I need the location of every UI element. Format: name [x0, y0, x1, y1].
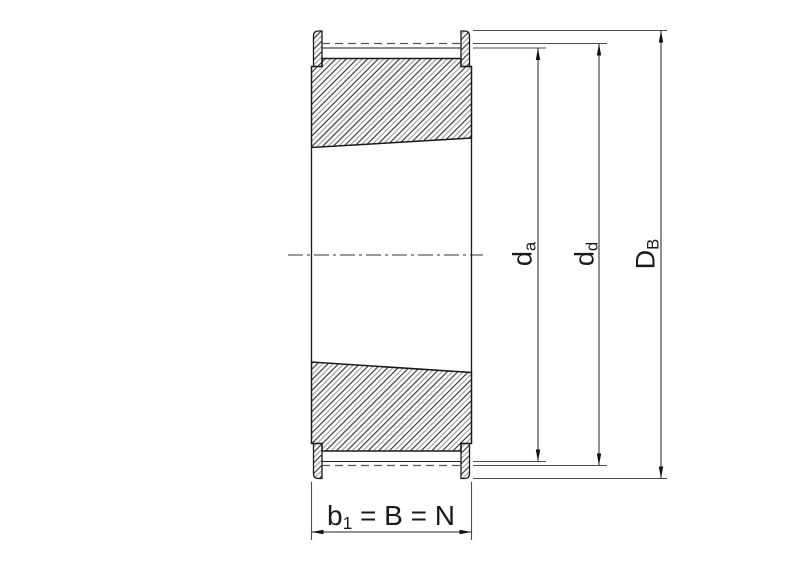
flange-bottom-left [314, 444, 323, 479]
label-width-base: b [327, 500, 343, 531]
label-width-dimension: b1 = B = N [327, 502, 455, 530]
arrow-b1-left [312, 530, 324, 534]
label-tip-diameter-base: d [508, 251, 538, 266]
label-flange-diameter-base: D [631, 250, 661, 270]
flange-bottom-right [461, 444, 470, 479]
arrow-DB-down [659, 467, 663, 479]
label-width-sub: 1 [343, 513, 353, 533]
label-pitch-diameter-sub: d [582, 242, 601, 251]
label-pitch-diameter: dd [572, 242, 599, 266]
label-tip-diameter-sub: a [520, 242, 539, 251]
flange-top-left [314, 31, 323, 67]
arrow-da-up [536, 48, 540, 60]
arrow-b1-right [460, 530, 472, 534]
arrow-dd-up [597, 44, 601, 56]
arrow-dd-down [597, 454, 601, 466]
pulley-lower-section [312, 362, 472, 451]
label-width-rest: = B = N [352, 500, 455, 531]
pulley-upper-section [312, 59, 472, 148]
label-flange-diameter: DB [633, 239, 660, 270]
label-tip-diameter: da [510, 242, 537, 266]
arrow-da-down [536, 450, 540, 462]
label-flange-diameter-sub: B [643, 239, 662, 250]
technical-drawing [0, 0, 800, 565]
flange-top-right [461, 31, 470, 67]
arrow-DB-up [659, 31, 663, 43]
drawing-canvas: da dd DB b1 = B = N [0, 0, 800, 565]
label-pitch-diameter-base: d [570, 251, 600, 266]
